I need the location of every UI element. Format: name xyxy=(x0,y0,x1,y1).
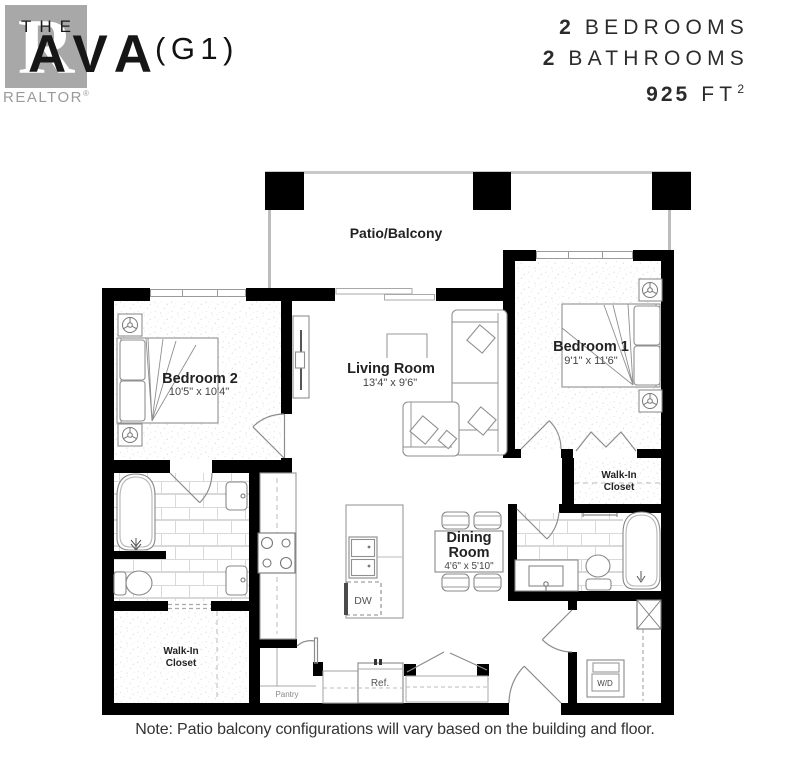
svg-text:Ref.: Ref. xyxy=(371,678,389,689)
svg-text:W/D: W/D xyxy=(597,679,613,688)
svg-text:10'5" x 10'4": 10'5" x 10'4" xyxy=(169,386,229,398)
svg-text:Bedroom 1: Bedroom 1 xyxy=(553,339,629,355)
svg-text:9'1" x 11'6": 9'1" x 11'6" xyxy=(564,355,617,367)
svg-text:Bedroom 2: Bedroom 2 xyxy=(162,371,238,387)
svg-text:Closet: Closet xyxy=(604,482,635,493)
svg-text:Dining: Dining xyxy=(446,530,491,546)
svg-text:Walk-In: Walk-In xyxy=(601,470,636,481)
svg-text:Room: Room xyxy=(448,545,489,561)
svg-text:13'4" x 9'6": 13'4" x 9'6" xyxy=(363,377,417,389)
svg-text:Living Room: Living Room xyxy=(347,361,435,377)
svg-text:Patio/Balcony: Patio/Balcony xyxy=(350,225,443,241)
svg-text:4'6" x 5'10": 4'6" x 5'10" xyxy=(444,561,494,572)
svg-text:Pantry: Pantry xyxy=(275,690,298,699)
svg-text:Closet: Closet xyxy=(166,658,197,669)
svg-text:Walk-In: Walk-In xyxy=(163,646,198,657)
svg-text:DW: DW xyxy=(354,595,372,607)
